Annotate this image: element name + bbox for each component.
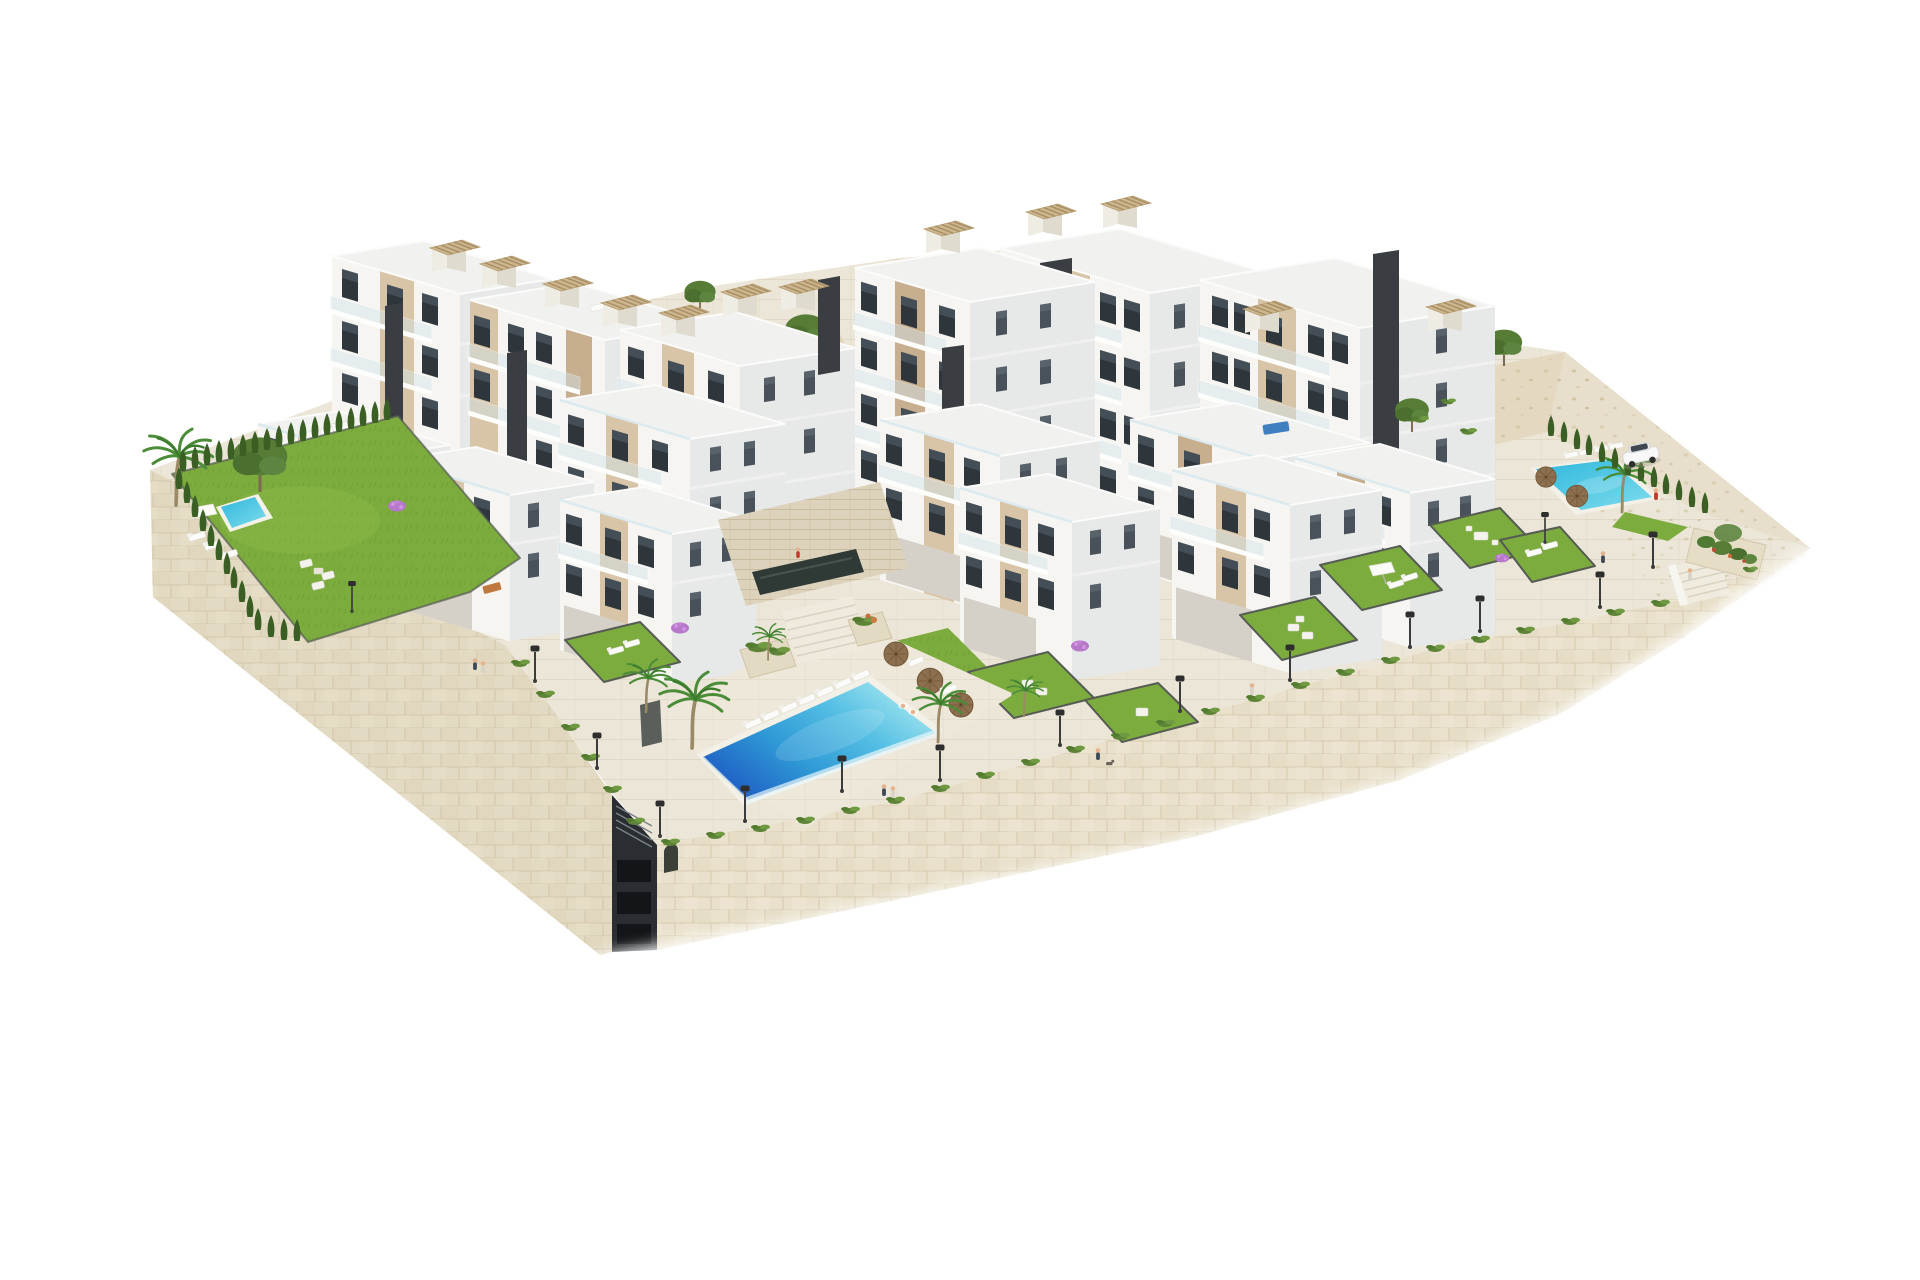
terraced-unit-f4 bbox=[958, 474, 1160, 680]
swimmer bbox=[908, 709, 918, 715]
garage-opening bbox=[617, 924, 651, 944]
garage-opening bbox=[617, 892, 651, 914]
dark-stair-core bbox=[818, 276, 840, 375]
dark-fence-panel bbox=[640, 700, 662, 747]
dark-stair-core bbox=[507, 350, 527, 465]
render-canvas: architectural-render bbox=[0, 0, 1920, 1280]
lawn-table bbox=[1136, 708, 1148, 716]
wall-arched-niche bbox=[664, 844, 678, 873]
dark-stair-core bbox=[1373, 250, 1399, 460]
architectural-render-scene: architectural-render bbox=[0, 0, 1920, 1280]
swimmer bbox=[898, 703, 908, 709]
garage-opening bbox=[617, 860, 651, 882]
